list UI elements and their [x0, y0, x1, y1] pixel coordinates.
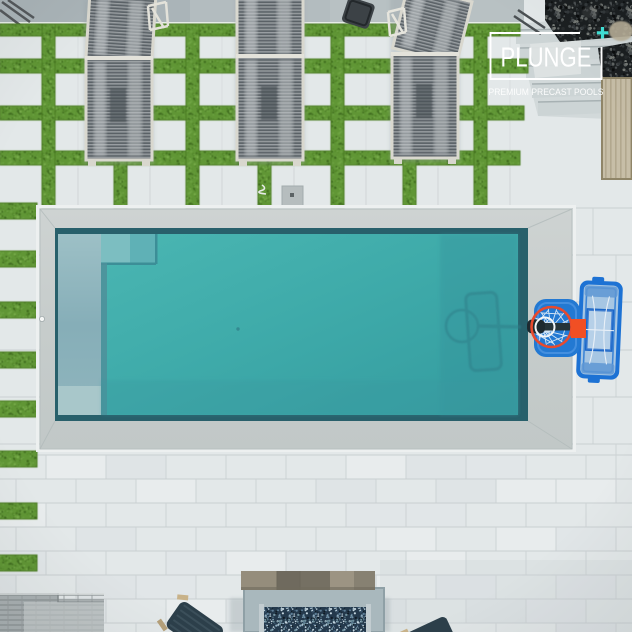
svg-text:PLUNGE: PLUNGE [501, 42, 592, 73]
svg-text:PREMIUM PRECAST POOLS: PREMIUM PRECAST POOLS [489, 87, 604, 98]
